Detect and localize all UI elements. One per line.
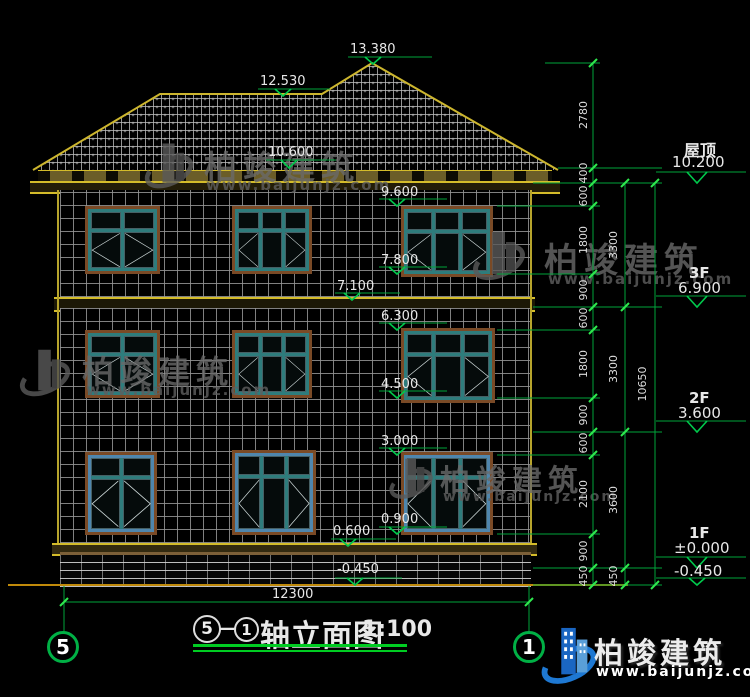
dim-value: 3300 (608, 341, 620, 397)
elevation-marker: 9.600 (381, 185, 418, 200)
floor-elevation: 6.900 (678, 279, 721, 297)
dimension-linework (0, 0, 750, 697)
dim-value: 3600 (608, 472, 620, 528)
floor-elevation: ±0.000 (674, 539, 730, 557)
dim-value: 1800 (578, 212, 590, 268)
bottom-dimension: 12300 (272, 587, 313, 602)
dim-value: 450 (578, 548, 590, 604)
elevation-marker: 7.800 (381, 253, 418, 268)
dim-value: 2780 (578, 87, 590, 143)
elevation-marker: 4.500 (381, 377, 418, 392)
title-axis-start-circle: 5 (193, 615, 221, 643)
axis-bubble-left: 5 (48, 632, 78, 662)
elevation-marker: 6.300 (381, 309, 418, 324)
axis-number: 1 (522, 635, 536, 659)
brand-logo: 柏竣建筑 www.baijunjz.com (538, 618, 750, 693)
elevation-marker: 3.000 (381, 434, 418, 449)
title-underline-thin (193, 650, 407, 652)
dim-value: 2100 (578, 466, 590, 522)
dim-total: 10650 (637, 356, 649, 412)
elevation-marker: 7.100 (337, 279, 374, 294)
floor-elevation: 10.200 (672, 153, 725, 171)
dimension-lines (64, 57, 746, 632)
axis-number: 5 (56, 635, 70, 659)
title-axis-end-circle: 1 (234, 617, 259, 642)
brand-url: www.baijunjz.com (596, 664, 750, 680)
elevation-marker: 10.600 (268, 145, 314, 160)
dim-value: 1800 (578, 336, 590, 392)
title-underline-thick (193, 644, 407, 647)
floor-elevation: 3.600 (678, 404, 721, 422)
elevation-marker: -0.450 (337, 562, 379, 577)
elevation-marker: 13.380 (350, 42, 396, 57)
elevation-marker: 0.900 (381, 512, 418, 527)
elevation-marker: 12.530 (260, 74, 306, 89)
title-axis-start: 5 (201, 619, 213, 639)
elevation-drawing-canvas: 柏竣建筑 www.baijunjz.com 柏竣建筑 www.baijunjz.… (0, 0, 750, 697)
brand-logo-icon (540, 622, 598, 688)
title-axis-end: 1 (241, 621, 251, 639)
floor-elevation: -0.450 (674, 562, 722, 580)
drawing-scale: 1:100 (362, 617, 432, 642)
elevation-marker: 0.600 (333, 524, 370, 539)
elevation-triangles (275, 57, 707, 585)
dim-value: 3300 (608, 217, 620, 273)
dim-value: 450 (608, 548, 620, 604)
dim-value: 600 (578, 415, 590, 471)
